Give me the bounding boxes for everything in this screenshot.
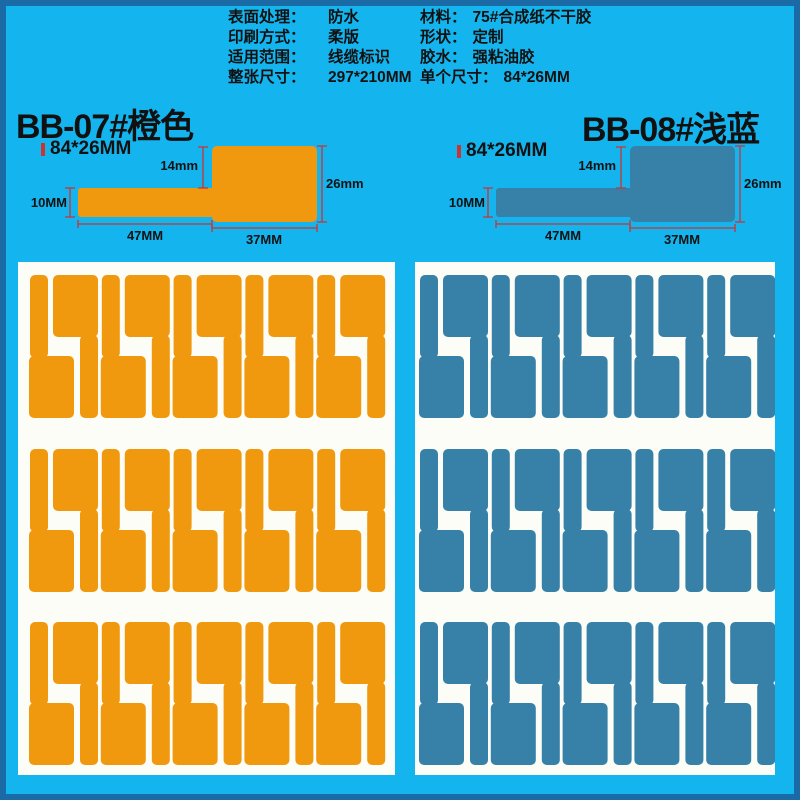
cable-label-sticker bbox=[634, 356, 679, 418]
cable-label-sticker bbox=[173, 530, 218, 592]
cable-label-sticker bbox=[224, 509, 242, 592]
cable-label-sticker bbox=[295, 509, 313, 592]
spec-row-unit-size: 单个尺寸： 84*26MM bbox=[420, 68, 591, 88]
cable-label-sticker bbox=[174, 275, 192, 358]
cable-label-sticker bbox=[80, 335, 98, 418]
dim-14mm: 14mm bbox=[578, 158, 616, 173]
spec-value: 强粘油胶 bbox=[473, 48, 535, 68]
cable-label-sticker bbox=[340, 622, 385, 684]
spec-label: 适用范围： bbox=[228, 48, 328, 68]
cable-label-sticker bbox=[730, 275, 775, 337]
cable-label-sticker bbox=[563, 703, 608, 765]
spec-value: 297*210MM bbox=[328, 68, 412, 88]
cable-label-sticker bbox=[367, 335, 385, 418]
cable-label-sticker bbox=[515, 275, 560, 337]
cable-label-sticker bbox=[317, 622, 335, 705]
cable-label-sticker bbox=[542, 682, 560, 765]
cable-label-sticker bbox=[152, 509, 170, 592]
label-sheet-blue bbox=[415, 262, 775, 775]
cable-label-sticker bbox=[420, 449, 438, 532]
cable-label-sticker bbox=[268, 622, 313, 684]
cable-label-sticker bbox=[757, 509, 775, 592]
cable-label-sticker bbox=[340, 449, 385, 511]
cable-label-sticker bbox=[491, 356, 536, 418]
cable-label-sticker bbox=[491, 530, 536, 592]
cable-label-sticker bbox=[197, 275, 242, 337]
cable-label-sticker bbox=[80, 682, 98, 765]
cable-label-sticker bbox=[492, 449, 510, 532]
spec-value: 防水 bbox=[328, 8, 359, 28]
spec-row-surface: 表面处理： 防水 bbox=[228, 8, 412, 28]
dim-10mm: 10MM bbox=[449, 195, 485, 210]
cable-label-sticker bbox=[685, 509, 703, 592]
cable-label-sticker bbox=[197, 449, 242, 511]
cable-label-sticker bbox=[173, 356, 218, 418]
cable-label-sticker bbox=[730, 449, 775, 511]
cable-label-sticker bbox=[101, 703, 146, 765]
cable-label-sticker bbox=[658, 622, 703, 684]
spec-row-glue: 胶水： 强粘油胶 bbox=[420, 48, 591, 68]
cable-label-sticker bbox=[317, 449, 335, 532]
spec-column-left: 表面处理： 防水 印刷方式： 柔版 适用范围： 线缆标识 整张尺寸： 297*2… bbox=[228, 8, 412, 88]
spec-value: 84*26MM bbox=[504, 68, 570, 88]
cable-label-sticker bbox=[635, 622, 653, 705]
cable-label-sticker bbox=[492, 275, 510, 358]
cable-label-sticker bbox=[706, 530, 751, 592]
cable-label-sticker bbox=[125, 275, 170, 337]
cable-label-sticker bbox=[470, 335, 488, 418]
cable-label-sticker bbox=[685, 335, 703, 418]
cable-label-sticker bbox=[174, 622, 192, 705]
cable-label-sticker bbox=[317, 275, 335, 358]
cable-label-sticker bbox=[707, 622, 725, 705]
dim-37mm: 37MM bbox=[246, 232, 282, 247]
dim-47mm: 47MM bbox=[127, 228, 163, 243]
cable-label-sticker bbox=[224, 682, 242, 765]
cable-label-sticker bbox=[340, 275, 385, 337]
cable-label-sticker bbox=[515, 449, 560, 511]
cable-label-sticker bbox=[443, 275, 488, 337]
cable-label-sticker bbox=[563, 356, 608, 418]
cable-label-sticker bbox=[658, 275, 703, 337]
cable-label-sticker bbox=[53, 622, 98, 684]
cable-label-sticker bbox=[707, 275, 725, 358]
spec-label: 材料： bbox=[420, 8, 467, 28]
cable-label-sticker bbox=[244, 703, 289, 765]
spec-column-right: 材料： 75#合成纸不干胶 形状： 定制 胶水： 强粘油胶 单个尺寸： 84*2… bbox=[420, 8, 591, 88]
cable-label-sticker bbox=[542, 335, 560, 418]
cable-label-sticker bbox=[102, 449, 120, 532]
cable-label-sticker bbox=[443, 449, 488, 511]
cable-label-sticker bbox=[707, 449, 725, 532]
cable-label-sticker bbox=[706, 703, 751, 765]
cable-label-sticker bbox=[244, 356, 289, 418]
cable-label-sticker bbox=[152, 682, 170, 765]
cable-label-sticker bbox=[587, 275, 632, 337]
spec-value: 柔版 bbox=[328, 28, 359, 48]
product-image: 表面处理： 防水 印刷方式： 柔版 适用范围： 线缆标识 整张尺寸： 297*2… bbox=[0, 0, 800, 800]
cable-label-sticker bbox=[419, 356, 464, 418]
cable-label-sticker bbox=[564, 275, 582, 358]
cable-label-sticker bbox=[443, 622, 488, 684]
spec-label: 胶水： bbox=[420, 48, 467, 68]
cable-label-sticker bbox=[173, 703, 218, 765]
cable-label-sticker bbox=[268, 275, 313, 337]
cable-label-sticker bbox=[635, 275, 653, 358]
cable-label-sticker bbox=[614, 335, 632, 418]
cable-label-sticker bbox=[245, 449, 263, 532]
cable-label-sticker bbox=[419, 703, 464, 765]
spec-row-material: 材料： 75#合成纸不干胶 bbox=[420, 8, 591, 28]
cable-label-sticker bbox=[197, 622, 242, 684]
dim-10mm: 10MM bbox=[31, 195, 67, 210]
dim-26mm: 26mm bbox=[326, 176, 364, 191]
cable-label-sticker bbox=[367, 682, 385, 765]
spec-row-sheet-size: 整张尺寸： 297*210MM bbox=[228, 68, 412, 88]
cable-label-sticker bbox=[53, 449, 98, 511]
cable-label-sticker bbox=[224, 335, 242, 418]
cable-label-sticker bbox=[706, 356, 751, 418]
cable-label-sticker bbox=[101, 530, 146, 592]
cable-label-sticker bbox=[634, 530, 679, 592]
dim-47mm: 47MM bbox=[545, 228, 581, 243]
dim-37mm: 37MM bbox=[664, 232, 700, 247]
cable-label-sticker bbox=[491, 703, 536, 765]
spec-label: 表面处理： bbox=[228, 8, 328, 28]
spec-row-scope: 适用范围： 线缆标识 bbox=[228, 48, 412, 68]
cable-label-sticker bbox=[245, 622, 263, 705]
cable-label-sticker bbox=[587, 622, 632, 684]
cable-label-sticker bbox=[757, 682, 775, 765]
cable-label-sticker bbox=[174, 449, 192, 532]
cable-label-sticker bbox=[152, 335, 170, 418]
cable-label-sticker bbox=[685, 682, 703, 765]
cable-label-sticker bbox=[563, 530, 608, 592]
cable-label-sticker bbox=[316, 356, 361, 418]
spec-row-printing: 印刷方式： 柔版 bbox=[228, 28, 412, 48]
cable-label-sticker bbox=[316, 530, 361, 592]
label-sheet-orange-pattern bbox=[18, 262, 395, 775]
label-sheet-orange bbox=[18, 262, 395, 775]
cable-label-sticker bbox=[30, 275, 48, 358]
spec-row-shape: 形状： 定制 bbox=[420, 28, 591, 48]
cable-label-sticker bbox=[295, 335, 313, 418]
cable-label-sticker bbox=[30, 449, 48, 532]
cable-label-sticker bbox=[102, 275, 120, 358]
cable-label-sticker bbox=[295, 682, 313, 765]
dim-14mm: 14mm bbox=[160, 158, 198, 173]
cable-label-sticker bbox=[245, 275, 263, 358]
spec-label: 整张尺寸： bbox=[228, 68, 328, 88]
spec-value: 75#合成纸不干胶 bbox=[473, 8, 592, 28]
cable-label-sticker bbox=[125, 449, 170, 511]
cable-label-sticker bbox=[658, 449, 703, 511]
cable-label-sticker bbox=[470, 509, 488, 592]
cable-label-sticker bbox=[757, 335, 775, 418]
dimension-diagram-blue: 14mm 26mm 10MM 47MM 37MM bbox=[448, 140, 778, 252]
cable-label-sticker bbox=[730, 622, 775, 684]
cable-label-sticker bbox=[316, 703, 361, 765]
cable-label-sticker bbox=[101, 356, 146, 418]
cable-label-sticker bbox=[53, 275, 98, 337]
cable-label-sticker bbox=[564, 449, 582, 532]
cable-label-sticker bbox=[614, 509, 632, 592]
cable-label-sticker bbox=[542, 509, 560, 592]
cable-label-sticker bbox=[29, 530, 74, 592]
cable-label-sticker bbox=[125, 622, 170, 684]
cable-label-sticker bbox=[420, 275, 438, 358]
cable-label-sticker bbox=[419, 530, 464, 592]
dim-26mm: 26mm bbox=[744, 176, 782, 191]
cable-label-sticker bbox=[614, 682, 632, 765]
spec-label: 印刷方式： bbox=[228, 28, 328, 48]
cable-label-sticker bbox=[564, 622, 582, 705]
cable-label-sticker bbox=[29, 356, 74, 418]
cable-label-sticker bbox=[30, 622, 48, 705]
spec-value: 线缆标识 bbox=[328, 48, 390, 68]
label-sheet-blue-pattern bbox=[415, 262, 775, 775]
spec-label: 形状： bbox=[420, 28, 467, 48]
cable-label-sticker bbox=[470, 682, 488, 765]
cable-label-sticker bbox=[29, 703, 74, 765]
cable-label-sticker bbox=[635, 449, 653, 532]
cable-label-sticker bbox=[420, 622, 438, 705]
spec-value: 定制 bbox=[473, 28, 504, 48]
cable-label-sticker bbox=[367, 509, 385, 592]
cable-label-sticker bbox=[634, 703, 679, 765]
cable-label-sticker bbox=[102, 622, 120, 705]
cable-label-sticker bbox=[492, 622, 510, 705]
dimension-diagram-orange: 14mm 26mm 10MM 47MM 37MM bbox=[30, 140, 360, 252]
cable-label-sticker bbox=[80, 509, 98, 592]
spec-label: 单个尺寸： bbox=[420, 68, 498, 88]
cable-label-sticker bbox=[587, 449, 632, 511]
cable-label-sticker bbox=[244, 530, 289, 592]
cable-label-sticker bbox=[515, 622, 560, 684]
cable-label-sticker bbox=[268, 449, 313, 511]
